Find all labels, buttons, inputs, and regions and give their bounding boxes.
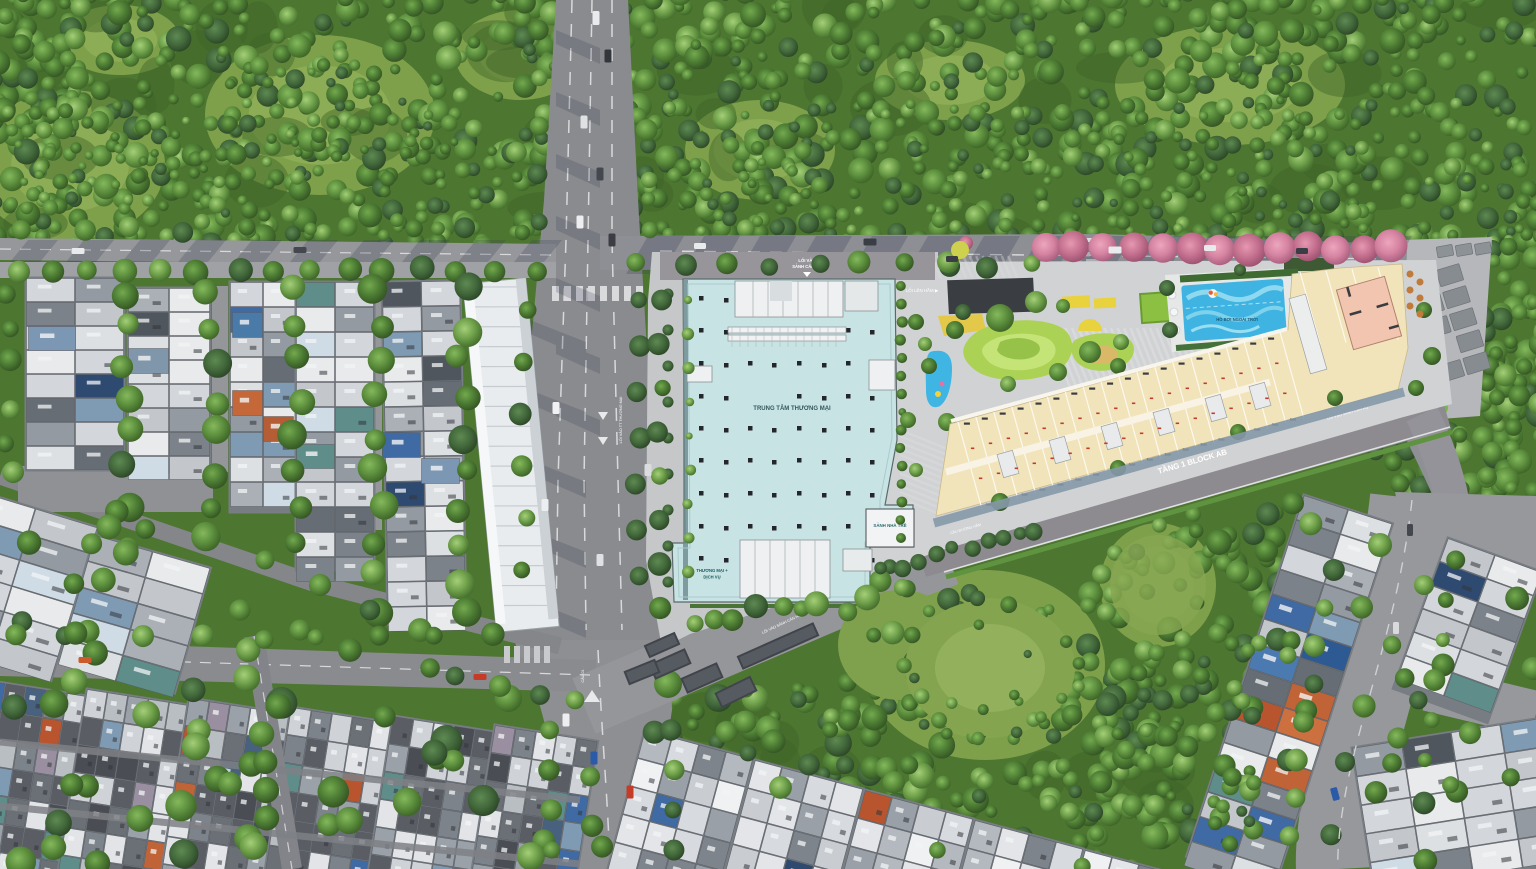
svg-text:LỐI VÀO TT THƯƠNG MẠI: LỐI VÀO TT THƯƠNG MẠI [618, 397, 623, 444]
svg-text:TRUNG TÂM THƯƠNG MẠI: TRUNG TÂM THƯƠNG MẠI [753, 405, 831, 412]
svg-text:HỒ BƠI NGOÀI TRỜI: HỒ BƠI NGOÀI TRỜI [1216, 317, 1258, 322]
svg-text:DỊCH VỤ: DỊCH VỤ [703, 575, 720, 580]
svg-text:THƯƠNG MẠI +: THƯƠNG MẠI + [696, 568, 728, 573]
svg-text:CẬU 01: CẬU 01 [580, 669, 585, 682]
svg-text:LỐI LÊN HẦM ▶: LỐI LÊN HẦM ▶ [906, 288, 939, 293]
